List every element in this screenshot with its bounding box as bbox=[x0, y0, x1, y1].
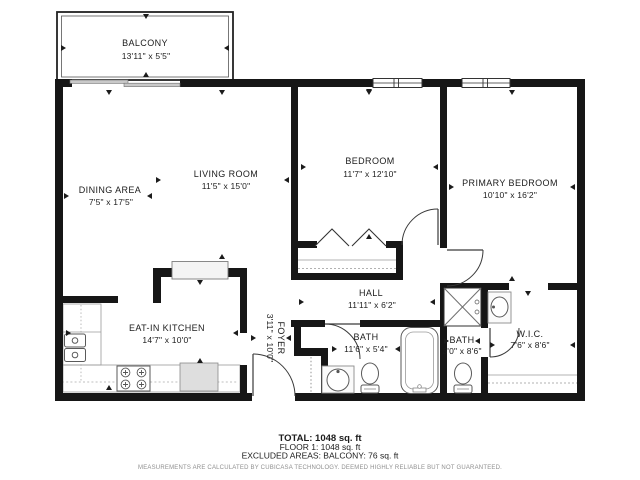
dining-label: DINING AREA bbox=[79, 185, 141, 195]
floorplan-canvas: BALCONY 13'11" x 5'5" DINING AREA 7'5" x… bbox=[0, 0, 640, 480]
dimension-tick bbox=[475, 338, 480, 344]
dimension-tick bbox=[224, 45, 229, 51]
dimension-tick bbox=[197, 358, 203, 363]
hall-label: HALL bbox=[359, 288, 383, 298]
dimension-tick bbox=[64, 193, 69, 199]
kitchen-label: EAT-IN KITCHEN bbox=[129, 323, 205, 333]
bath2-label: BATH bbox=[450, 335, 475, 345]
bath1-sink-icon bbox=[322, 366, 354, 393]
bath1-dims: 11'6" x 5'4" bbox=[344, 344, 388, 354]
primary-door-icon bbox=[447, 250, 483, 286]
stove-icon bbox=[117, 366, 150, 391]
dimension-tick bbox=[332, 346, 337, 352]
wic-shelf bbox=[488, 375, 577, 383]
balcony-label: BALCONY bbox=[122, 38, 168, 48]
dimension-tick bbox=[449, 184, 454, 190]
dimension-tick bbox=[301, 164, 306, 170]
dimension-tick bbox=[490, 342, 495, 348]
dimension-tick bbox=[430, 299, 435, 305]
bedroom-door-icon bbox=[402, 209, 438, 245]
shower-icon bbox=[444, 288, 481, 326]
dining-dims: 7'5" x 17'5" bbox=[89, 197, 133, 207]
kitchen-sink-icon bbox=[65, 334, 86, 362]
dimension-tick bbox=[570, 184, 575, 190]
dimension-tick bbox=[219, 254, 225, 259]
wic-sink-icon bbox=[488, 292, 511, 323]
summary-footer: TOTAL: 1048 sq. ft FLOOR 1: 1048 sq. ft … bbox=[138, 433, 502, 471]
bedroom-label: BEDROOM bbox=[345, 156, 394, 166]
living-dims: 11'5" x 15'0" bbox=[202, 181, 251, 191]
dimension-tick bbox=[395, 346, 400, 352]
dimension-tick bbox=[147, 193, 152, 199]
primary-label: PRIMARY BEDROOM bbox=[462, 178, 558, 188]
wic-label: W.I.C. bbox=[517, 329, 544, 339]
dimension-tick bbox=[106, 90, 112, 95]
excluded-area-text: EXCLUDED AREAS: BALCONY: 76 sq. ft bbox=[242, 451, 399, 461]
dimension-tick bbox=[197, 280, 203, 285]
kitchen-dims: 14'7" x 10'0" bbox=[142, 335, 191, 345]
bedroom-bifold-doors-icon bbox=[315, 229, 386, 246]
bath1-label: BATH bbox=[354, 332, 379, 342]
dimension-tick bbox=[366, 89, 372, 94]
bedroom-dims: 11'7" x 12'10" bbox=[343, 169, 397, 179]
foyer-dims: 3'11" x 10'0" bbox=[265, 314, 275, 363]
balcony-dims: 13'11" x 5'5" bbox=[122, 51, 171, 61]
dimension-tick bbox=[233, 330, 238, 336]
dimension-tick bbox=[156, 177, 161, 183]
dimension-tick bbox=[143, 14, 149, 19]
disclaimer-text: MEASUREMENTS ARE CALCULATED BY CUBICASA … bbox=[138, 465, 502, 471]
kitchen-bar-counter bbox=[172, 262, 228, 280]
dishwasher-icon bbox=[180, 363, 218, 391]
dimension-tick bbox=[251, 335, 256, 341]
dimension-tick bbox=[509, 276, 515, 281]
dimension-tick bbox=[433, 164, 438, 170]
bath2-toilet-icon bbox=[454, 363, 472, 393]
dimension-tick bbox=[61, 45, 66, 51]
dimension-tick bbox=[509, 90, 515, 95]
bath1-toilet-icon bbox=[361, 363, 379, 393]
dimension-tick bbox=[143, 72, 149, 77]
dimension-ticks bbox=[61, 14, 575, 390]
hall-dims: 11'11" x 6'2" bbox=[348, 300, 396, 310]
dimension-tick bbox=[284, 177, 289, 183]
dimension-tick bbox=[525, 291, 531, 296]
foyer-label: FOYER bbox=[276, 321, 286, 354]
bedroom-window-icon bbox=[373, 79, 422, 88]
dimension-tick bbox=[106, 385, 112, 390]
bedroom-closet-shelf bbox=[298, 260, 396, 269]
sliding-door-icon bbox=[70, 80, 180, 87]
primary-window-icon bbox=[462, 79, 510, 88]
dimension-tick bbox=[219, 90, 225, 95]
wic-dims: 7'6" x 8'6" bbox=[510, 340, 549, 350]
bath2-dims: 3'0" x 8'6" bbox=[442, 346, 481, 356]
dimension-tick bbox=[570, 342, 575, 348]
dimension-tick bbox=[299, 299, 304, 305]
living-label: LIVING ROOM bbox=[194, 169, 258, 179]
floor-plan-svg: BALCONY 13'11" x 5'5" DINING AREA 7'5" x… bbox=[0, 0, 640, 480]
bathtub-icon bbox=[401, 328, 438, 394]
primary-dims: 10'10" x 16'2" bbox=[483, 190, 537, 200]
